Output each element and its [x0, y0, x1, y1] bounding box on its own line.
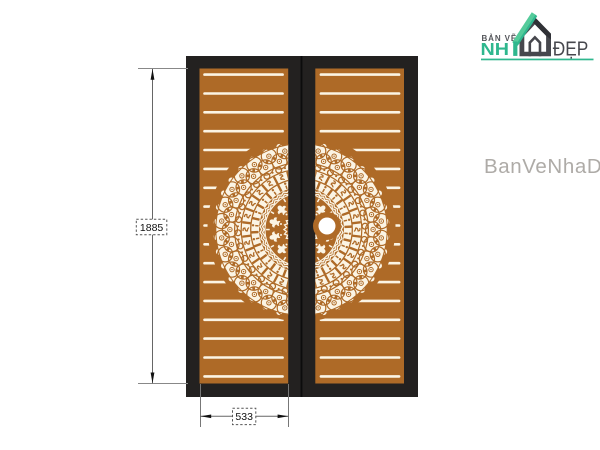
svg-text:1885: 1885: [140, 222, 164, 234]
svg-text:BanVeNhaDep.com: BanVeNhaDep.com: [484, 155, 600, 178]
svg-text:533: 533: [235, 411, 253, 423]
svg-text:NH: NH: [481, 39, 510, 59]
svg-text:ĐẸP: ĐẸP: [553, 39, 589, 61]
